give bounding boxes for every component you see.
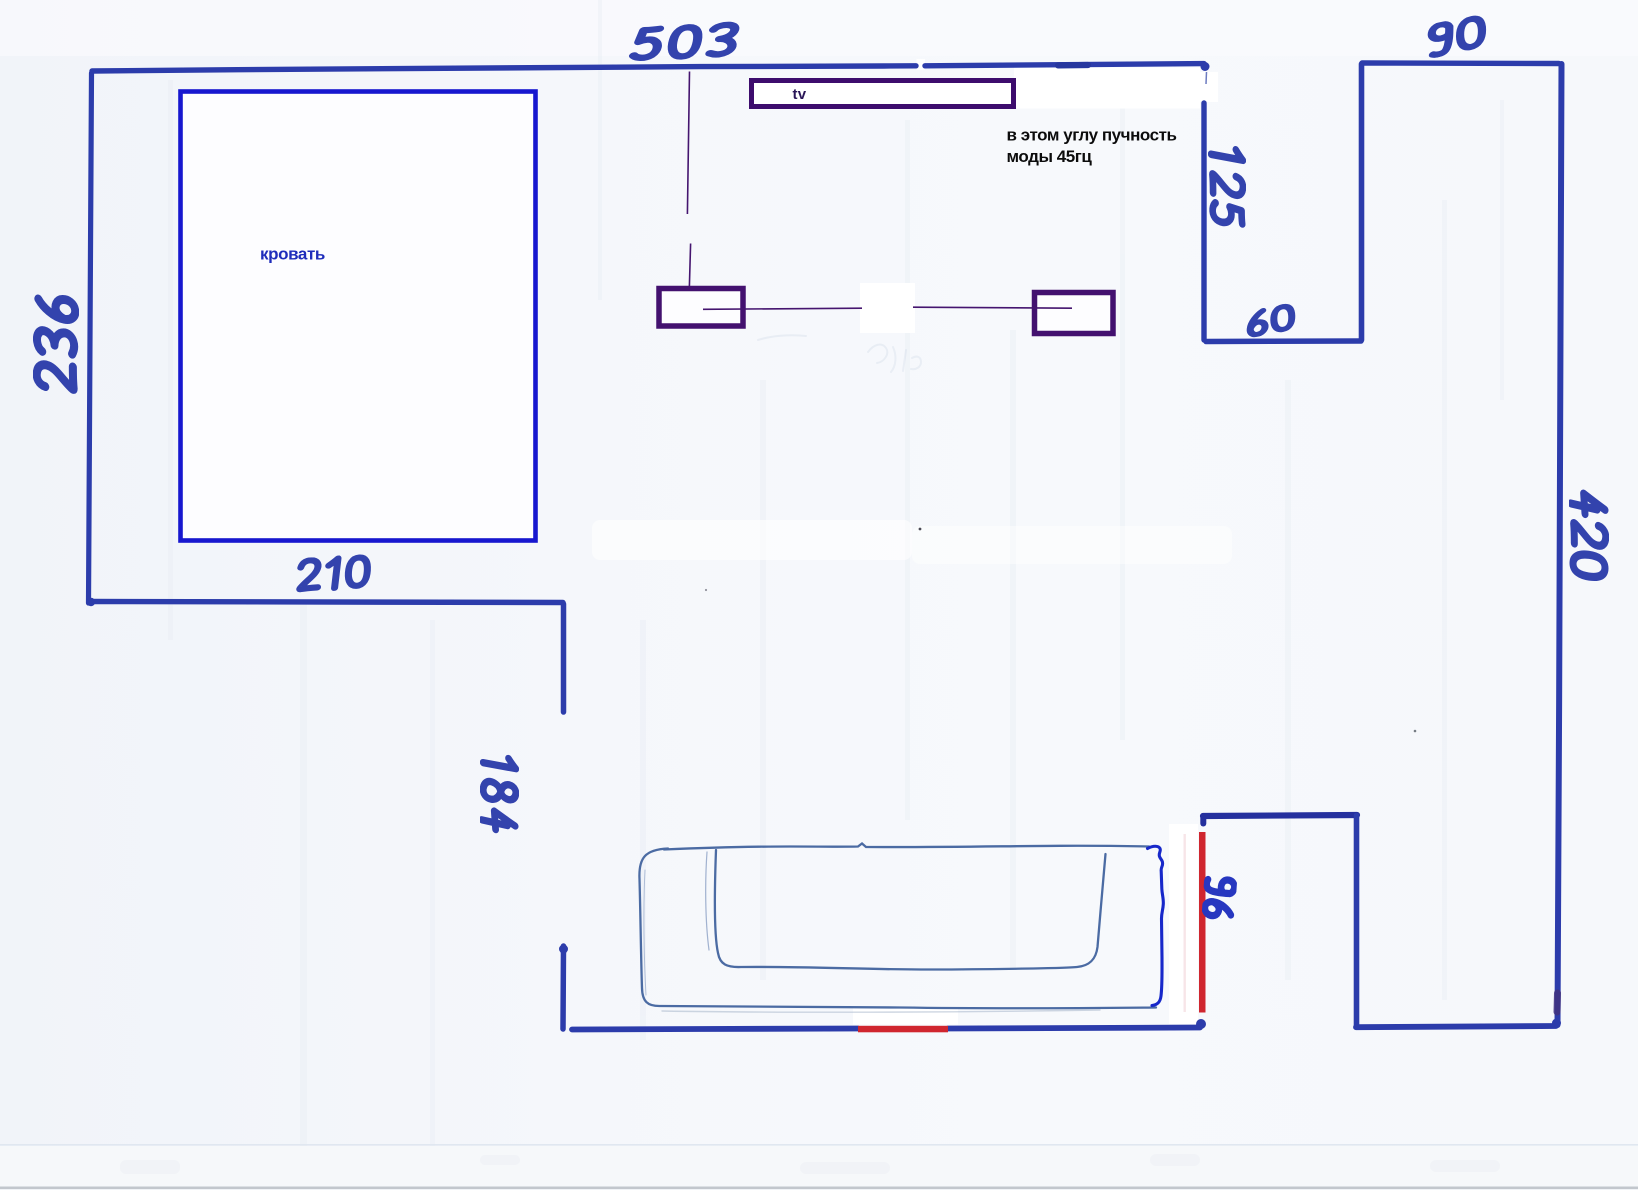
svg-text:кровать: кровать xyxy=(260,245,325,264)
svg-text:в этом углу пучность: в этом углу пучность xyxy=(1007,126,1177,145)
svg-text:tv: tv xyxy=(793,86,807,103)
svg-text:моды 45гц: моды 45гц xyxy=(1007,147,1093,166)
